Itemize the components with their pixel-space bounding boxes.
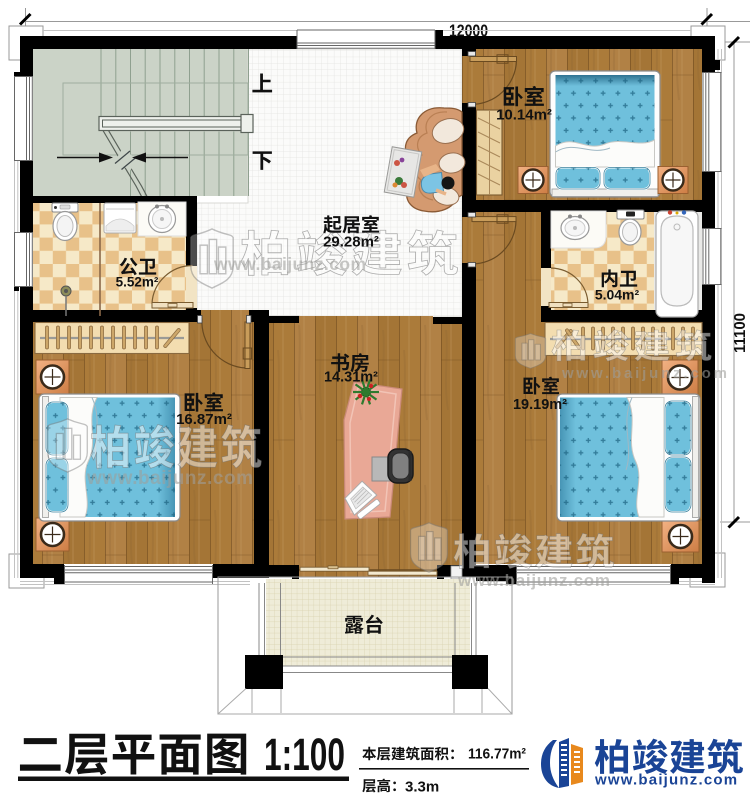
- svg-text:16.87m²: 16.87m²: [176, 411, 232, 428]
- svg-text:29.28m²: 29.28m²: [323, 234, 379, 251]
- svg-text:3.3m: 3.3m: [405, 779, 439, 796]
- svg-text:www.baijunz.com: www.baijunz.com: [213, 254, 366, 274]
- svg-text:www.baijunz.com: www.baijunz.com: [86, 468, 253, 489]
- svg-text:www.baijunz.com: www.baijunz.com: [457, 571, 610, 590]
- svg-text:11100: 11100: [732, 313, 749, 353]
- svg-text:www.baijunz.com: www.baijunz.com: [594, 772, 738, 789]
- svg-text:5.52m²: 5.52m²: [116, 275, 159, 290]
- svg-text:116.77m²: 116.77m²: [468, 746, 526, 763]
- svg-text:1:100: 1:100: [264, 729, 345, 780]
- svg-text:10.14m²: 10.14m²: [496, 107, 552, 124]
- svg-text:www.baijunz.com: www.baijunz.com: [561, 365, 727, 382]
- svg-text:5.04m²: 5.04m²: [595, 287, 640, 303]
- svg-text:14.31m²: 14.31m²: [324, 370, 378, 386]
- svg-text:19.19m²: 19.19m²: [513, 397, 567, 413]
